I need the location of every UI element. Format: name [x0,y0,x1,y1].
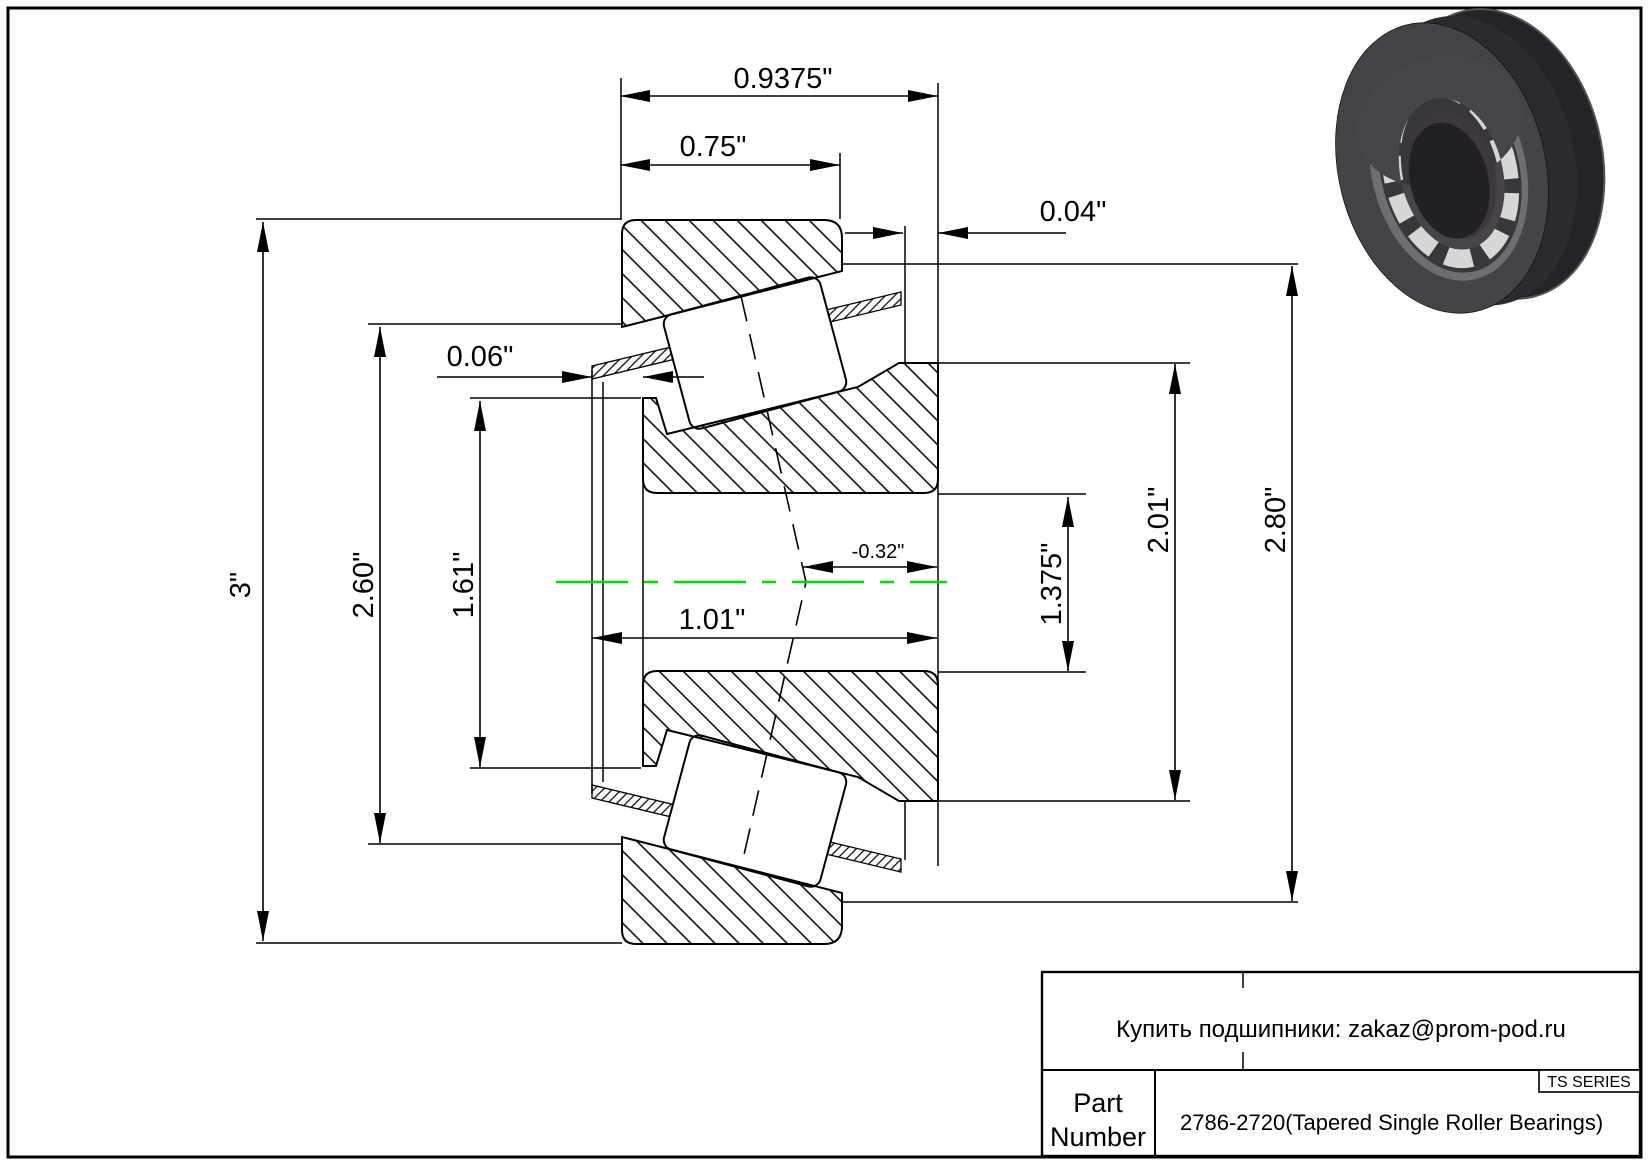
dim-label-cone-front: 1.61" [448,552,480,619]
dim-label-center-offset: -0.32" [852,541,905,563]
part-label-line2: Number [1050,1122,1146,1152]
dim-label-overall-width: 0.9375" [734,63,833,95]
dim-label-cone-width: 1.01" [679,604,746,636]
dim-label-cup-back: 2.80" [1260,487,1292,554]
part-number-text: 2786-2720(Tapered Single Roller Bearings… [1180,1110,1603,1135]
dim-label-bore-diameter: 1.375" [1036,543,1068,626]
bearing-cross-section [556,83,947,944]
series-label: TS SERIES [1547,1074,1631,1091]
dim-label-front-standout: 0.06" [447,341,514,373]
dim-label-cup-width: 0.75" [680,131,747,163]
part-label-line1: Part [1073,1088,1123,1118]
title-block: Купить подшипники: zakaz@prom-pod.ru TS … [1042,972,1640,1156]
contact-text: Купить подшипники: zakaz@prom-pod.ru [1116,1016,1566,1043]
dim-label-cone-back: 2.01" [1143,487,1175,554]
dim-label-cup-inner: 2.60" [348,552,380,619]
drawing-sheet: 0.9375" 0.75" 0.04" 0.06" 1.01" -0.32" 3… [0,0,1649,1167]
technical-drawing-canvas: 0.9375" 0.75" 0.04" 0.06" 1.01" -0.32" 3… [0,0,1649,1167]
bearing-3d-image [1306,0,1633,336]
dim-label-back-standout: 0.04" [1040,196,1107,228]
dim-label-outer-diameter: 3" [225,572,257,598]
